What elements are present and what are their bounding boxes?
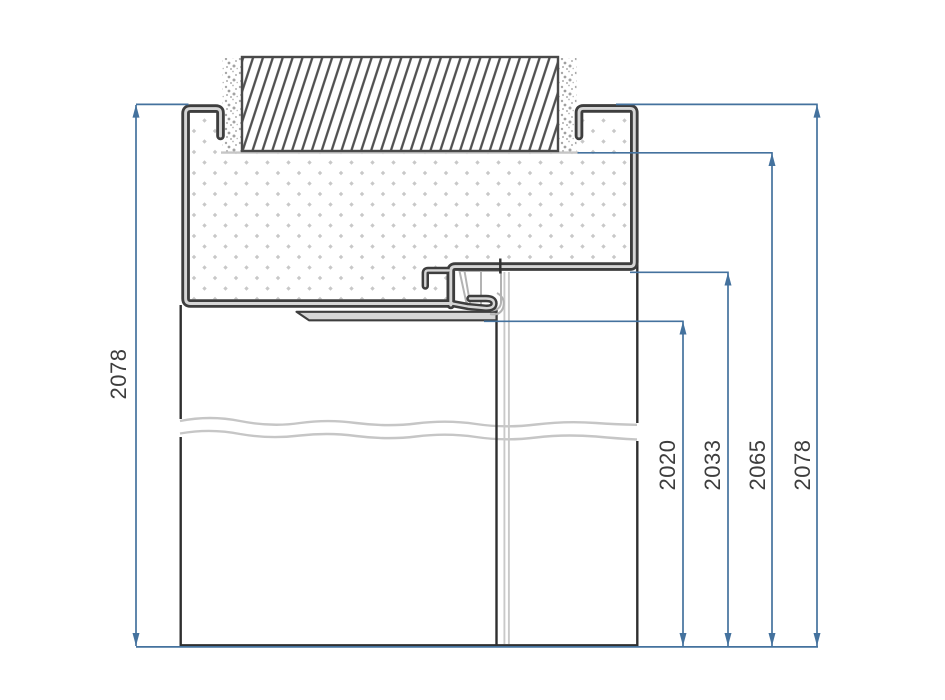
- dim-label-2033: 2033: [701, 420, 725, 510]
- dim-label-2065: 2065: [746, 420, 770, 510]
- technical-drawing-canvas: 2078 2020 2033 2065 2078: [0, 0, 945, 700]
- plaster-layer-left: [223, 58, 242, 153]
- door-top-edge: [297, 312, 497, 321]
- dim-label-left-2078: 2078: [107, 329, 131, 419]
- dim-label-2078: 2078: [791, 420, 815, 510]
- dim-label-2020: 2020: [656, 420, 680, 510]
- plaster-layer-right: [558, 58, 577, 153]
- masonry-wall-section: [242, 57, 558, 151]
- break-lines: [180, 418, 637, 440]
- section-drawing: [0, 0, 945, 700]
